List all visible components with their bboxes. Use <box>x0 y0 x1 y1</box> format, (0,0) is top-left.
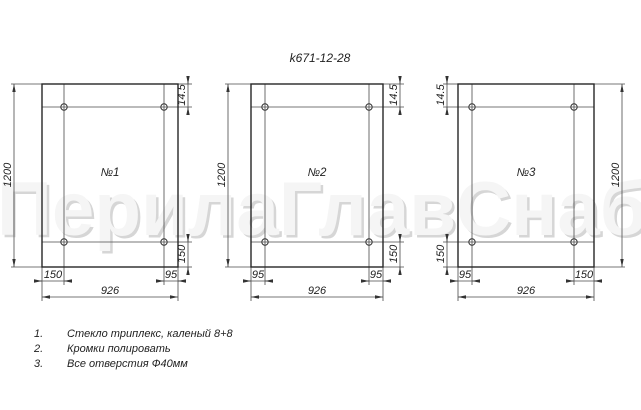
panel-1-dim-left-hole: 150 <box>44 269 63 281</box>
note-item: 3.Все отверстия Ф40мм <box>34 357 233 372</box>
panel-3-dim-width: 926 <box>517 285 536 297</box>
panel-1-dim-right-hole: 95 <box>165 269 178 281</box>
note-text: Стекло триплекс, каленый 8+8 <box>67 328 233 340</box>
panel-2-label: №2 <box>308 167 327 179</box>
drawing-page: ПерилаГлавСнаб ПерилаГлавСнаб k671-12-28 <box>0 0 641 410</box>
panel-1-dim-height: 1200 <box>2 162 14 187</box>
panel-1-label: №1 <box>101 167 120 179</box>
notes-list: 1.Стекло триплекс, каленый 8+8 2.Кромки … <box>34 327 233 372</box>
panel-3-dim-bottom-hole: 150 <box>435 244 447 263</box>
note-item: 2.Кромки полировать <box>34 342 233 357</box>
panel-3-dim-right-hole: 150 <box>575 269 594 281</box>
panel-2-dim-right-hole: 95 <box>370 269 383 281</box>
panel-2-dim-width: 926 <box>308 285 327 297</box>
panel-1-dim-bottom-hole: 150 <box>176 244 188 263</box>
note-number: 2. <box>34 342 67 357</box>
panel-3-label: №3 <box>517 167 536 179</box>
panel-2-dim-bottom-hole: 150 <box>388 244 400 263</box>
note-number: 1. <box>34 327 67 342</box>
panel-1-dim-top-hole: 14.5 <box>176 83 188 105</box>
drawing-number: k671-12-28 <box>290 51 351 65</box>
panel-1-dim-width: 926 <box>101 285 120 297</box>
panel-2-dim-top-hole: 14.5 <box>388 83 400 105</box>
panel-3-dim-left-hole: 95 <box>459 269 472 281</box>
note-text: Кромки полировать <box>67 343 171 355</box>
panel-2-dim-left-hole: 95 <box>252 269 265 281</box>
note-item: 1.Стекло триплекс, каленый 8+8 <box>34 327 233 342</box>
panel-3-dim-top-hole: 14.5 <box>435 83 447 105</box>
note-text: Все отверстия Ф40мм <box>67 358 188 370</box>
watermark: ПерилаГлавСнаб ПерилаГлавСнаб <box>0 167 641 255</box>
panel-3-dim-height: 1200 <box>610 162 622 187</box>
note-number: 3. <box>34 357 67 372</box>
watermark-text: ПерилаГлавСнаб <box>0 167 641 252</box>
panel-2-dim-height: 1200 <box>216 162 228 187</box>
